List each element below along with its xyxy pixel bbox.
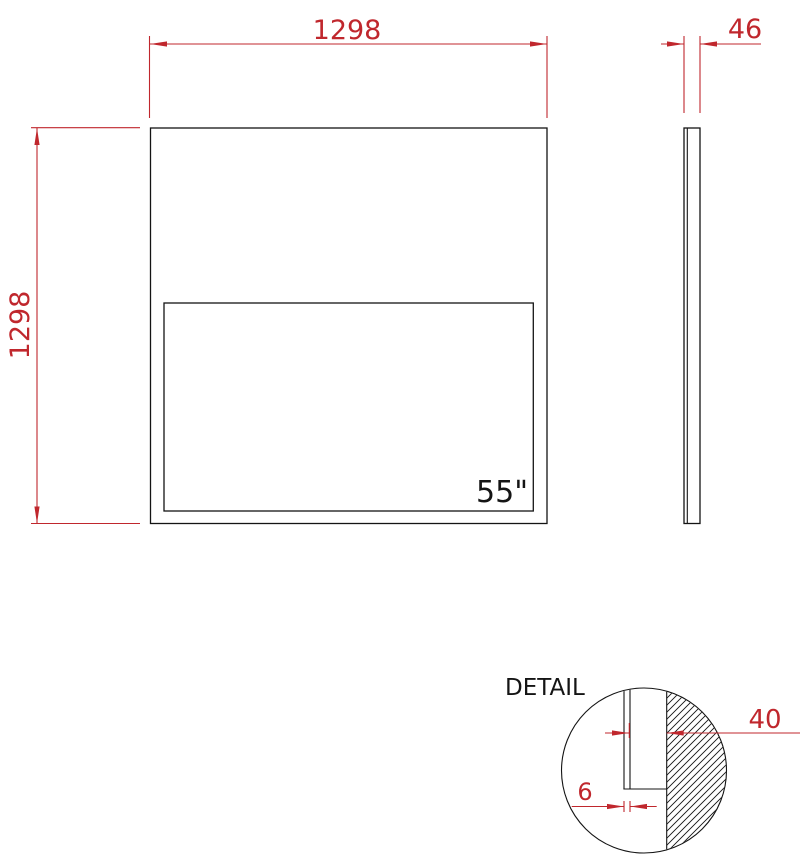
technical-drawing-canvas: 55" 1298 1298 — [0, 0, 810, 861]
arrowhead-up-icon — [34, 128, 39, 145]
side-profile-outline — [684, 128, 700, 524]
panel-outline — [151, 128, 548, 524]
glass-thickness-value: 6 — [577, 778, 592, 806]
arrowhead-right-icon — [612, 730, 629, 735]
height-dimension-value: 1298 — [5, 291, 36, 360]
front-view: 55" — [151, 128, 548, 524]
height-dimension: 1298 — [5, 128, 140, 524]
arrowhead-down-icon — [34, 507, 39, 524]
side-view — [684, 128, 700, 524]
drawing-svg: 55" 1298 1298 — [0, 0, 810, 861]
hatched-material — [667, 686, 729, 856]
detail-view: DETAIL 40 — [505, 675, 800, 856]
arrowhead-right-icon — [607, 804, 624, 809]
thickness-dimension-value: 46 — [728, 14, 762, 45]
arrowhead-left-icon — [150, 41, 167, 46]
glass-thickness-dimension: 6 — [572, 778, 657, 812]
detail-section — [623, 686, 728, 856]
thickness-dimension: 46 — [661, 14, 762, 113]
body-depth-value: 40 — [748, 705, 781, 735]
width-dimension: 1298 — [150, 15, 548, 118]
detail-title: DETAIL — [505, 675, 585, 701]
arrowhead-left-icon — [700, 41, 717, 46]
width-dimension-value: 1298 — [313, 15, 382, 46]
arrowhead-left-icon — [630, 804, 647, 809]
arrowhead-right-icon — [667, 41, 684, 46]
screen-size-label: 55" — [476, 475, 528, 510]
arrowhead-right-icon — [530, 41, 547, 46]
